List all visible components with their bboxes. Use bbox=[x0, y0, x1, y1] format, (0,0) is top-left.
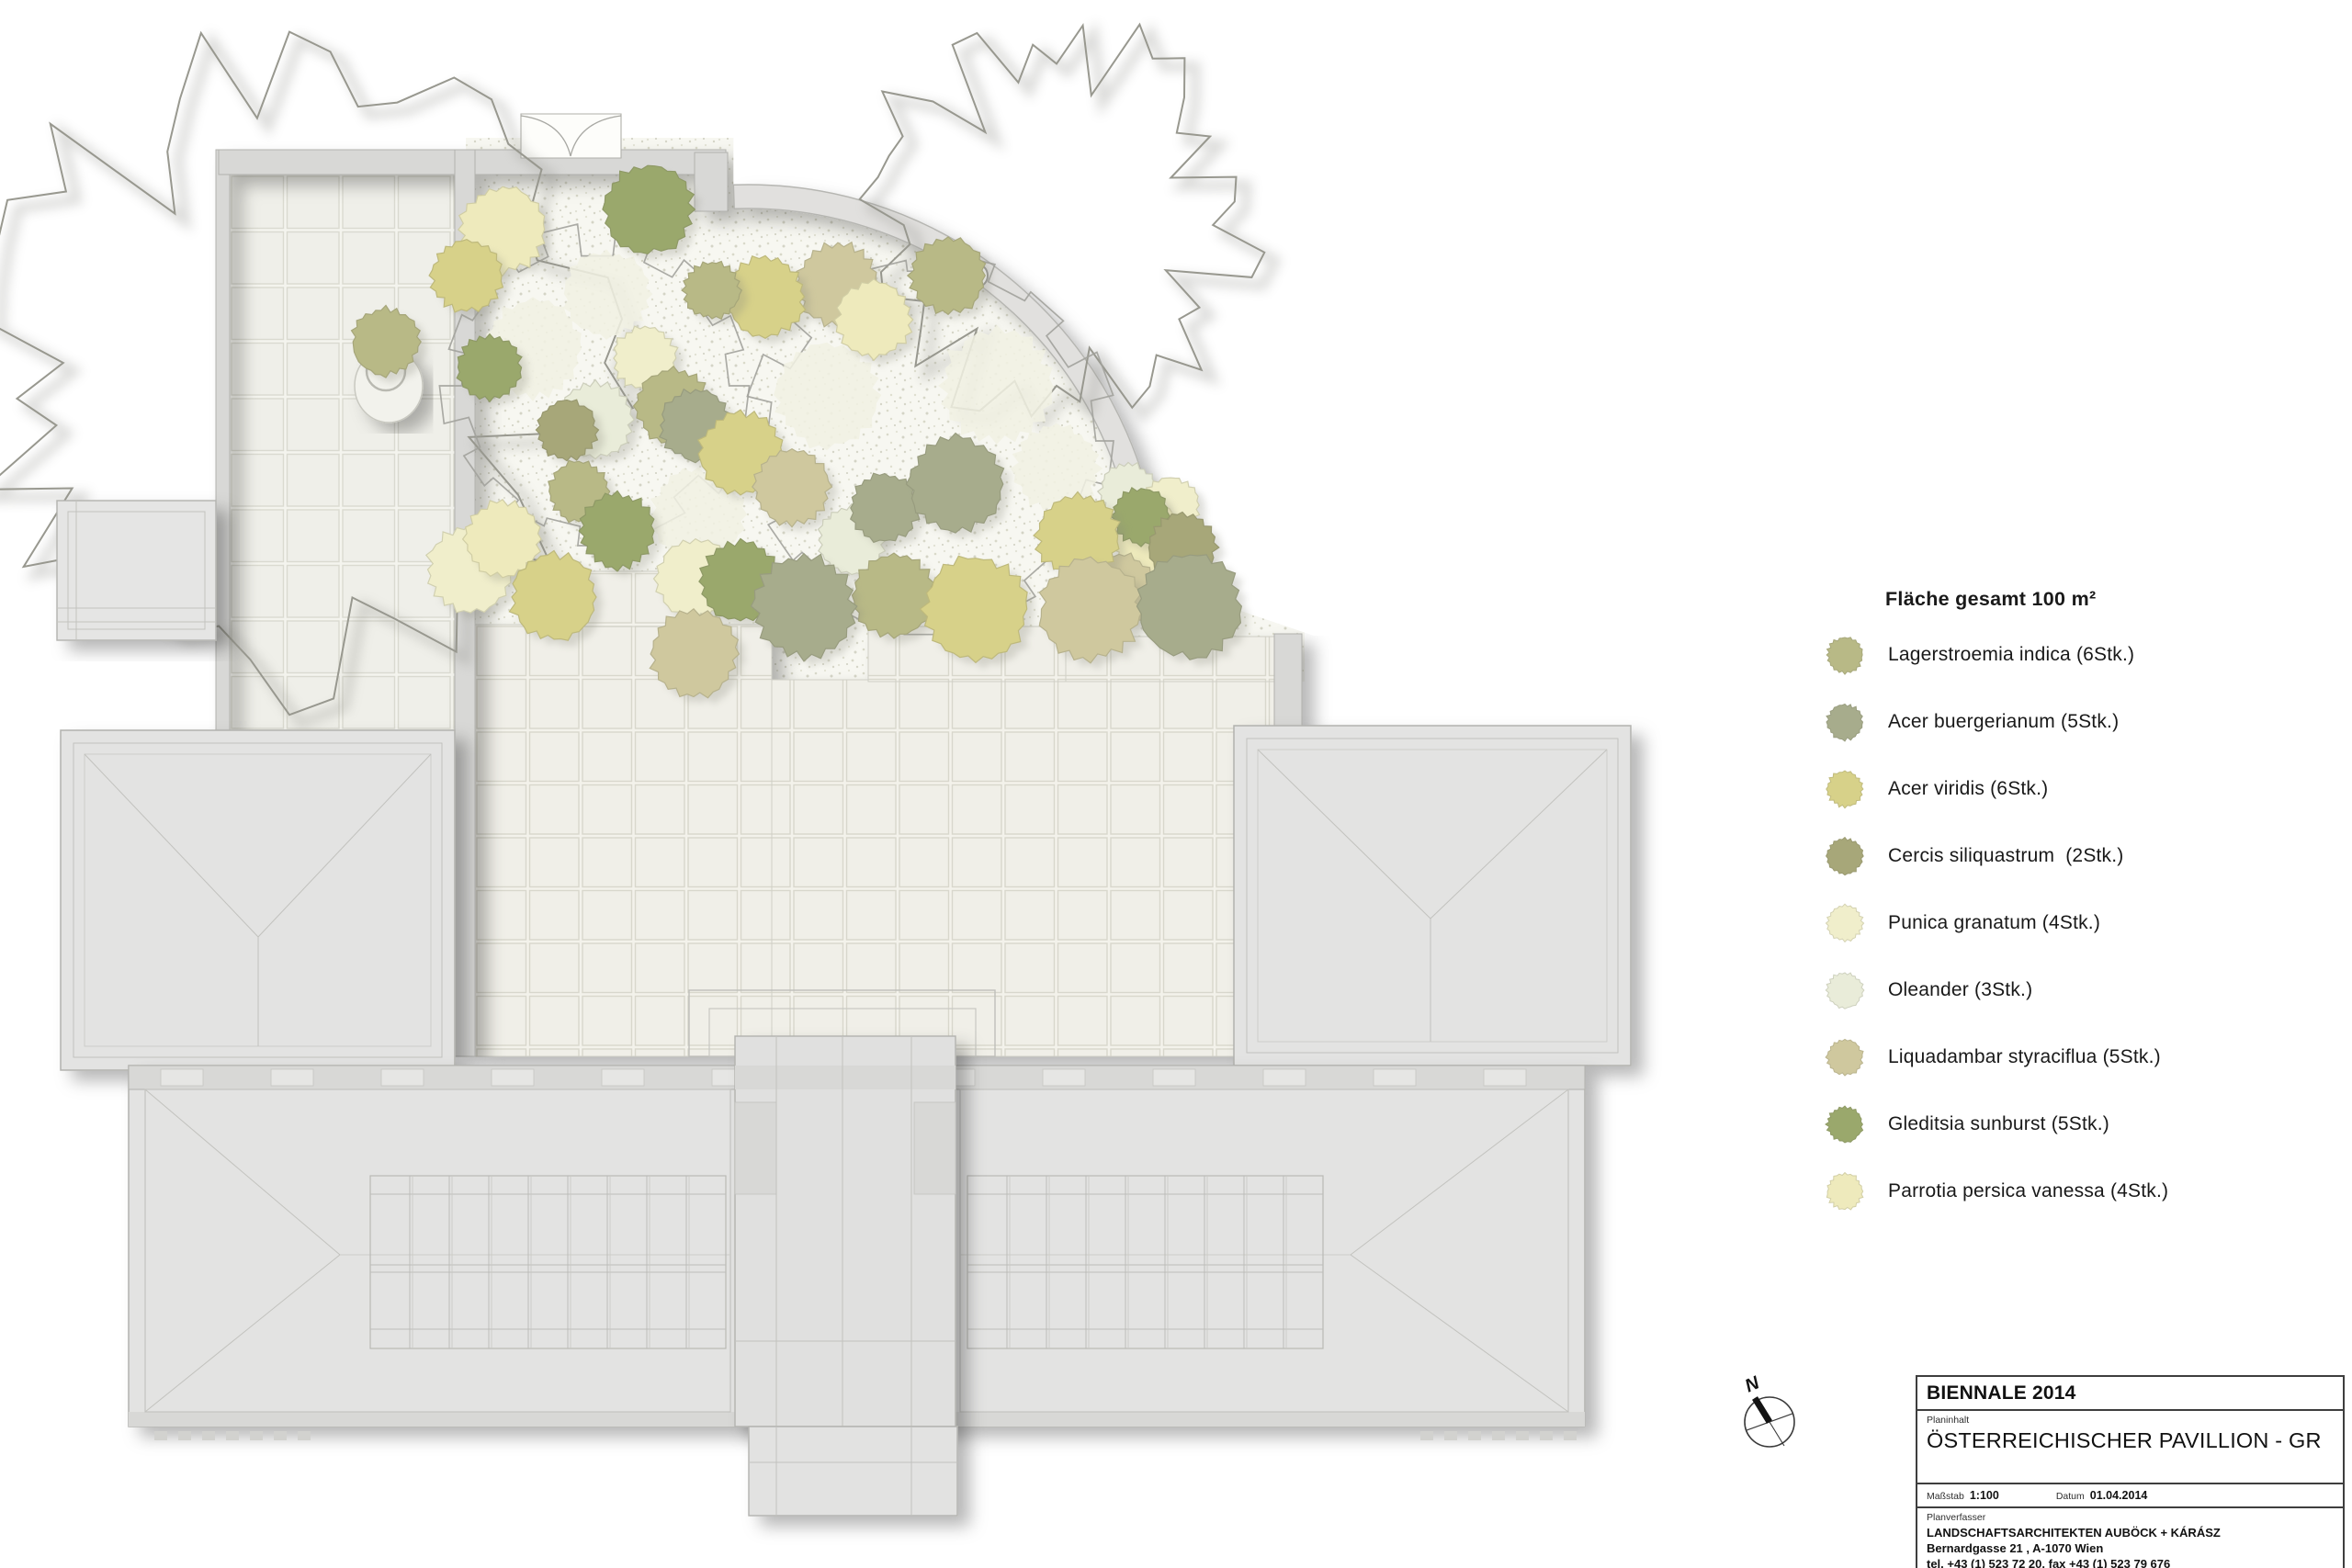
legend-item-label: Lagerstroemia indica (6Stk.) bbox=[1888, 644, 2134, 666]
scale-value: 1:100 bbox=[1970, 1489, 1999, 1502]
legend-item-label: Parrotia persica vanessa (4Stk.) bbox=[1888, 1180, 2168, 1202]
north-label: N bbox=[1742, 1372, 1763, 1396]
plant-swatch-icon bbox=[1824, 768, 1866, 810]
central-spine bbox=[735, 1036, 957, 1516]
legend-item-label: Gleditsia sunburst (5Stk.) bbox=[1888, 1113, 2109, 1135]
plant-swatch-icon bbox=[1824, 1103, 1866, 1145]
legend-item: Acer buergerianum (5Stk.) bbox=[1824, 702, 2347, 742]
plan-content-title: ÖSTERREICHISCHER PAVILLION - GR bbox=[1927, 1428, 2334, 1453]
plant-swatch-icon bbox=[1824, 634, 1866, 676]
north-arrow: N bbox=[1733, 1372, 1810, 1461]
legend-item: Cercis siliquastrum (2Stk.) bbox=[1824, 836, 2347, 876]
legend-item-label: Liquadambar styraciflua (5Stk.) bbox=[1888, 1046, 2161, 1068]
date-value: 01.04.2014 bbox=[2090, 1489, 2148, 1502]
legend-item: Liquadambar styraciflua (5Stk.) bbox=[1824, 1037, 2347, 1077]
plant-swatch-icon bbox=[1824, 835, 1866, 877]
legend-item: Oleander (3Stk.) bbox=[1824, 970, 2347, 1010]
author-line: tel. +43 (1) 523 72 20, fax +43 (1) 523 … bbox=[1927, 1556, 2334, 1568]
plant-swatch-icon bbox=[1824, 969, 1866, 1011]
legend-item-label: Cercis siliquastrum (2Stk.) bbox=[1888, 845, 2123, 867]
west-wing bbox=[61, 730, 455, 1070]
legend-rows: Lagerstroemia indica (6Stk.)Acer buerger… bbox=[1824, 635, 2347, 1212]
content-label: Planinhalt bbox=[1927, 1415, 2334, 1426]
date-label: Datum bbox=[2056, 1491, 2085, 1502]
author-line: Bernardgasse 21 , A-1070 Wien bbox=[1927, 1540, 2334, 1556]
compass-icon: N bbox=[1733, 1372, 1810, 1461]
legend-title: Fläche gesamt 100 m² bbox=[1885, 588, 2347, 611]
project-title: BIENNALE 2014 bbox=[1917, 1377, 2343, 1411]
legend-item-label: Acer viridis (6Stk.) bbox=[1888, 778, 2048, 800]
plant-swatch-icon bbox=[1824, 902, 1866, 944]
plant-swatch-icon bbox=[1824, 701, 1866, 743]
canvas: Fläche gesamt 100 m² Lagerstroemia indic… bbox=[0, 0, 2352, 1568]
legend-item: Parrotia persica vanessa (4Stk.) bbox=[1824, 1171, 2347, 1212]
author-line: LANDSCHAFTSARCHITEKTEN AUBÖCK + KÁRÁSZ bbox=[1927, 1525, 2334, 1540]
plant-swatch-icon bbox=[1824, 1036, 1866, 1078]
leaf-motif bbox=[521, 114, 621, 158]
legend-item: Lagerstroemia indica (6Stk.) bbox=[1824, 635, 2347, 675]
author-lines: LANDSCHAFTSARCHITEKTEN AUBÖCK + KÁRÁSZBe… bbox=[1927, 1525, 2334, 1568]
annex-building bbox=[57, 501, 216, 640]
legend-item-label: Punica granatum (4Stk.) bbox=[1888, 912, 2100, 934]
east-wing bbox=[1234, 726, 1631, 1066]
legend-item: Acer viridis (6Stk.) bbox=[1824, 769, 2347, 809]
legend-item-label: Oleander (3Stk.) bbox=[1888, 979, 2032, 1001]
plant-swatch-icon bbox=[1824, 1170, 1866, 1213]
legend-item: Gleditsia sunburst (5Stk.) bbox=[1824, 1104, 2347, 1145]
scale-label: Maßstab bbox=[1927, 1491, 1964, 1502]
title-block: BIENNALE 2014 Planinhalt ÖSTERREICHISCHE… bbox=[1916, 1375, 2345, 1568]
author-label: Planverfasser bbox=[1927, 1512, 2334, 1523]
plant-legend: Fläche gesamt 100 m² Lagerstroemia indic… bbox=[1824, 588, 2347, 1212]
legend-item-label: Acer buergerianum (5Stk.) bbox=[1888, 711, 2119, 733]
legend-item: Punica granatum (4Stk.) bbox=[1824, 903, 2347, 943]
